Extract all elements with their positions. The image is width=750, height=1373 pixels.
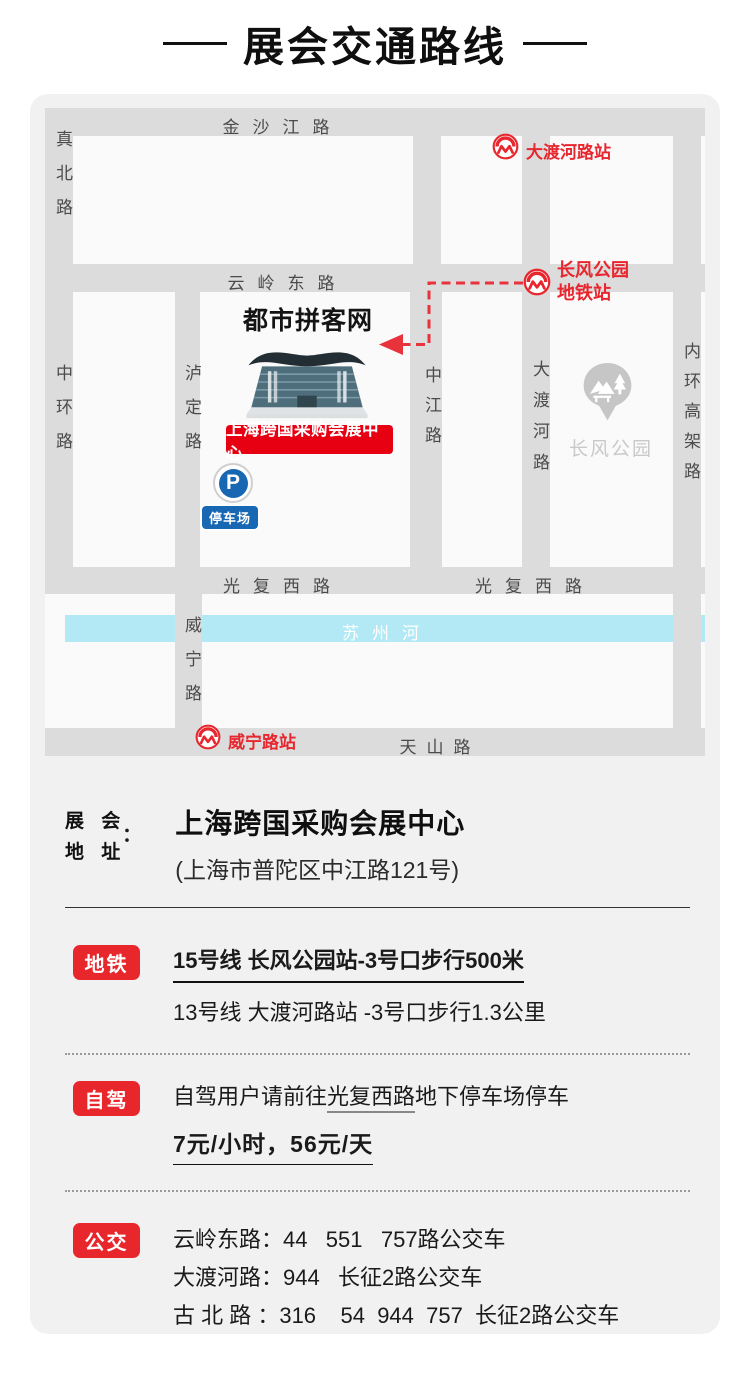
title-line-left	[163, 42, 227, 45]
road-label-zhonghuan: 中环路	[50, 364, 75, 466]
venue-detail-address: (上海市普陀区中江路121号)	[175, 851, 465, 885]
road-label-luding: 泸定路	[179, 364, 204, 466]
address-content: 上海跨国采购会展中心 (上海市普陀区中江路121号)	[175, 802, 465, 885]
parking-lot-tag: 停车场	[202, 506, 258, 529]
metro-logo-icon	[195, 724, 221, 750]
divider-solid	[65, 907, 690, 908]
convention-center-building	[243, 339, 371, 423]
address-section: 展 会 地 址 ： 上海跨国采购会展中心 (上海市普陀区中江路121号)	[65, 802, 690, 885]
page: 展会交通路线 金沙江路 云岭东路 光复西路 光复西路 天山路	[0, 16, 750, 1334]
driving-section: 自驾 自驾用户请前往光复西路地下停车场停车 7元/小时，56元/天	[65, 1079, 690, 1165]
road-label-zhongjiang: 中江路	[419, 366, 444, 456]
bus-line-daduhe: 大渡河路：944 长征2路公交车	[173, 1259, 619, 1297]
station-changfeng: 长风公园 地铁站	[557, 259, 629, 305]
bus-section: 公交 云岭东路：44 551 757路公交车 大渡河路：944 长征2路公交车 …	[65, 1221, 690, 1334]
address-label-line2: 地 址	[65, 837, 126, 868]
address-label-line1: 展 会	[65, 806, 126, 837]
driving-badge: 自驾	[73, 1081, 140, 1116]
title-line-right	[523, 42, 587, 45]
road-label-guangfu-west-left: 光复西路	[193, 572, 373, 597]
venue-name-tag: 上海跨国采购会展中心	[226, 425, 393, 454]
road-daduhe	[522, 136, 550, 567]
station-daduhe: 大渡河路站	[526, 138, 611, 163]
metro-content: 15号线 长风公园站-3号口步行500米 13号线 大渡河路站 -3号口步行1.…	[173, 943, 546, 1027]
road-jinshajiang	[45, 108, 705, 136]
park-name-label: 长风公园	[563, 434, 659, 461]
road-label-tianshan: 天山路	[375, 733, 505, 758]
driving-content: 自驾用户请前往光复西路地下停车场停车 7元/小时，56元/天	[173, 1079, 569, 1165]
road-label-zhenbei: 真北路	[50, 130, 75, 232]
map-brand-watermark: 都市拼客网	[223, 301, 393, 337]
driving-road-name: 光复西路	[327, 1084, 415, 1113]
park-pin-icon	[581, 362, 634, 424]
road-label-yunling-east: 云岭东路	[195, 269, 380, 294]
metro-logo-icon	[523, 268, 551, 296]
station-changfeng-line1: 长风公园	[557, 259, 629, 282]
bus-line-gubei: 古 北 路 ：316 54 944 757 长征2路公交车	[173, 1297, 619, 1334]
driving-text-suffix: 地下停车场停车	[415, 1084, 569, 1109]
parking-icon: P	[213, 463, 253, 503]
traffic-card: 金沙江路 云岭东路 光复西路 光复西路 天山路 真北路 中环路 泸定路 中江路 …	[30, 94, 720, 1334]
metro-badge: 地铁	[73, 945, 140, 980]
metro-line-15: 15号线 长风公园站-3号口步行500米	[173, 943, 524, 983]
divider-dotted	[65, 1190, 690, 1192]
page-header: 展会交通路线	[0, 16, 750, 70]
bus-badge: 公交	[73, 1223, 140, 1258]
venue-name: 上海跨国采购会展中心	[175, 802, 465, 842]
road-label-neihuan-gaojia: 内环高架路	[678, 342, 703, 492]
river-label: 苏州河	[297, 619, 477, 644]
address-label: 展 会 地 址	[65, 806, 126, 885]
driving-text-prefix: 自驾用户请前往	[173, 1084, 327, 1109]
metro-line-13: 13号线 大渡河路站 -3号口步行1.3公里	[173, 995, 546, 1027]
road-label-weining: 威宁路	[179, 616, 204, 718]
address-colon: ：	[122, 820, 141, 885]
road-zhongjiang-north	[413, 136, 441, 264]
divider-dotted	[65, 1053, 690, 1055]
parking-price: 7元/小时，56元/天	[173, 1125, 373, 1165]
road-label-jinshajiang: 金沙江路	[190, 113, 375, 138]
road-label-guangfu-west-right: 光复西路	[445, 572, 625, 597]
metro-section: 地铁 15号线 长风公园站-3号口步行500米 13号线 大渡河路站 -3号口步…	[65, 943, 690, 1027]
route-map: 金沙江路 云岭东路 光复西路 光复西路 天山路 真北路 中环路 泸定路 中江路 …	[45, 108, 705, 756]
station-weining: 威宁路站	[228, 728, 296, 753]
bus-content: 云岭东路：44 551 757路公交车 大渡河路：944 长征2路公交车 古 北…	[173, 1221, 619, 1334]
station-changfeng-line2: 地铁站	[557, 282, 629, 305]
metro-logo-icon	[492, 133, 519, 160]
parking-p-letter: P	[219, 469, 248, 498]
driving-instructions: 自驾用户请前往光复西路地下停车场停车	[173, 1079, 569, 1111]
road-label-daduhe: 大渡河路	[527, 360, 552, 484]
bus-line-yunling: 云岭东路：44 551 757路公交车	[173, 1221, 619, 1259]
page-title: 展会交通路线	[243, 13, 507, 73]
info-sections: 展 会 地 址 ： 上海跨国采购会展中心 (上海市普陀区中江路121号) 地铁 …	[30, 756, 720, 1334]
